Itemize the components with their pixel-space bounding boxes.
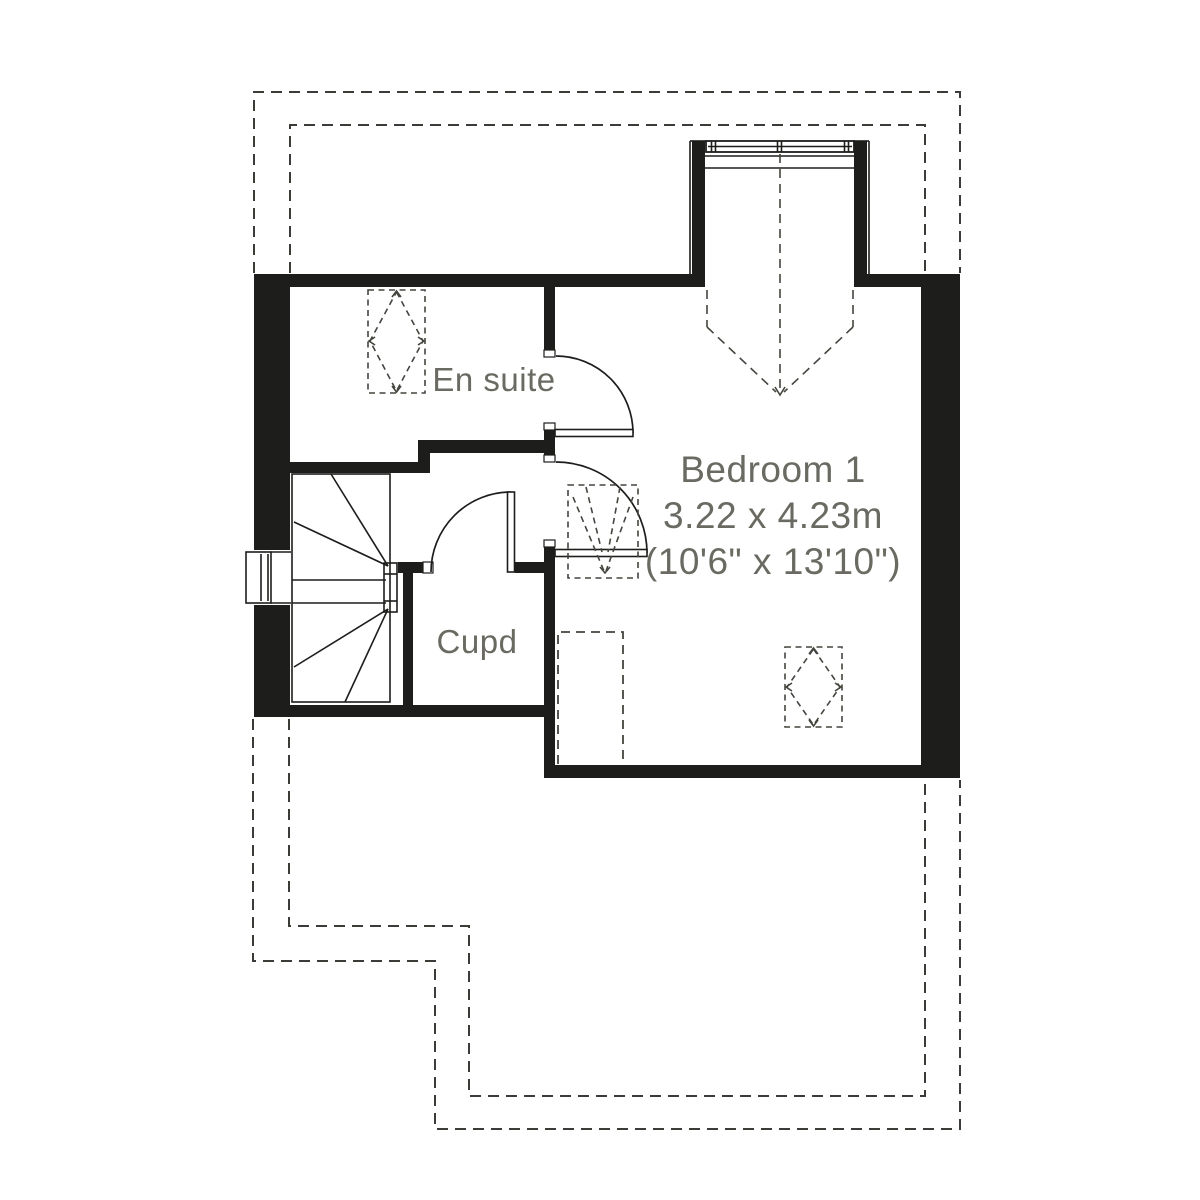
jamb-notch	[544, 350, 555, 357]
skylight-tick	[418, 337, 424, 345]
slope-diagonal-right	[784, 327, 853, 392]
door-ensuite	[555, 356, 633, 437]
skylight-ensuite	[368, 290, 425, 393]
door-swing-arc	[431, 492, 511, 572]
wall-dormer-cheek-right	[854, 141, 867, 287]
ensuite-label: En suite	[432, 361, 555, 398]
cupboard-label: Cupd	[437, 623, 518, 660]
wall-cupboard-west	[403, 562, 413, 705]
roof-outline-lower	[253, 719, 960, 1129]
floor-plan-drawing: En suite Bedroom 1 3.22 x 4.23m (10'6" x…	[0, 0, 1200, 1200]
wall-bottom-left	[254, 705, 553, 717]
skylight-diamond	[787, 649, 840, 725]
skylight-tick	[835, 683, 841, 691]
slope-arrowhead	[775, 387, 785, 395]
jamb-notch	[544, 423, 555, 430]
skylight-vee-line	[606, 497, 633, 571]
side-window	[246, 550, 292, 605]
bedroom-dimensions-imperial: (10'6" x 13'10")	[645, 541, 901, 582]
skylight-tick	[809, 648, 818, 654]
wall-dormer-cheek-left	[692, 141, 705, 287]
wall-right	[921, 274, 960, 778]
skylight-vee-line	[573, 497, 604, 571]
skylight-bedroom-rear	[785, 647, 842, 727]
wall-top-left	[254, 274, 705, 287]
skylight-outline	[785, 647, 842, 727]
dormer-slope-arrow	[707, 154, 853, 395]
floor-plan: En suite Bedroom 1 3.22 x 4.23m (10'6" x…	[0, 0, 1200, 1200]
wall-divider-mid	[544, 430, 555, 455]
skylight-tick	[392, 386, 401, 392]
door-swing-arc	[556, 356, 633, 433]
wall-ensuite-south	[418, 440, 544, 453]
wall-divider-lower	[544, 547, 555, 778]
bedroom-dimensions-metric: 3.22 x 4.23m	[663, 495, 883, 536]
door-leaf	[555, 430, 633, 437]
skylight-tick	[809, 720, 818, 726]
skylight-vee-line	[586, 487, 602, 552]
stair-outline	[292, 474, 390, 702]
skylight-outline	[368, 290, 425, 393]
slope-diagonal-left	[707, 327, 776, 392]
jamb-notch	[544, 540, 555, 547]
skylight-tick	[600, 567, 610, 573]
wall-top-right	[867, 274, 921, 287]
wall-cupboard-north-right	[515, 562, 544, 573]
room-labels: En suite Bedroom 1 3.22 x 4.23m (10'6" x…	[432, 361, 901, 660]
door-bedroom	[555, 462, 647, 557]
wall-divider-stub	[544, 287, 555, 350]
bedroom-label: Bedroom 1	[680, 449, 866, 490]
skylight-bedroom-door	[568, 485, 638, 578]
roof-outline-outer-bottom	[253, 719, 960, 1129]
jamb-notch	[544, 455, 555, 462]
window-opening	[246, 550, 292, 605]
wall-stair-north	[290, 462, 430, 473]
wall-bottom-right	[544, 765, 960, 778]
skylight-diamond	[370, 292, 423, 391]
door-cupboard	[431, 492, 515, 572]
skylight-tick	[392, 291, 401, 297]
skylight-tick	[786, 683, 792, 691]
staircase	[292, 474, 397, 702]
skylight-tick	[369, 337, 375, 345]
wall-left	[254, 274, 290, 717]
headroom-outline	[558, 632, 623, 764]
door-leaf	[508, 492, 515, 572]
door-swing-arc	[556, 462, 647, 553]
skylight-outline	[568, 485, 638, 578]
skylight-vee-line	[608, 487, 620, 552]
